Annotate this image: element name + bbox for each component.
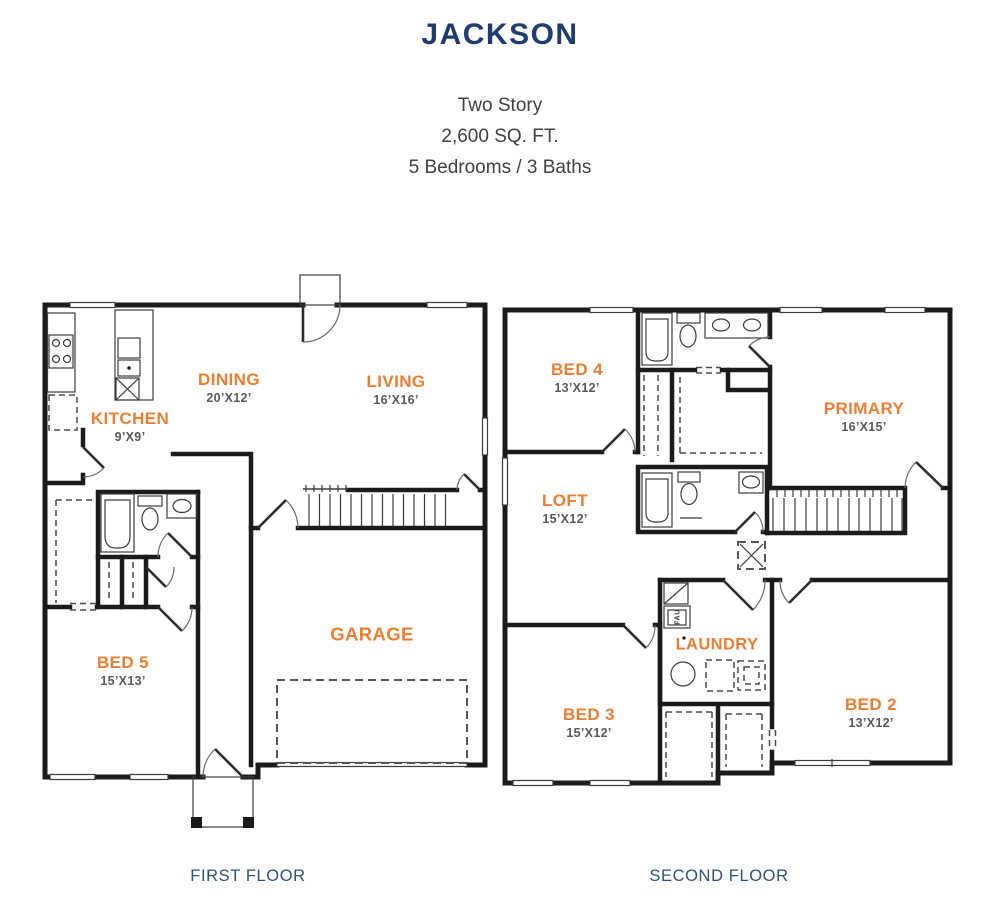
plan-summary: Two Story 2,600 SQ. FT. 5 Bedrooms / 3 B… — [0, 90, 1000, 183]
room-label-bed5: BED 5 15’X13’ — [97, 654, 149, 690]
fau-unit-label: FAU — [674, 609, 681, 625]
summary-sqft: 2,600 SQ. FT. — [0, 121, 1000, 152]
room-label-garage: GARAGE — [330, 626, 414, 643]
room-label-bed3: BED 3 15’X12’ — [563, 706, 615, 742]
first-floor-bath-fixtures — [101, 494, 197, 552]
page-title: JACKSON — [0, 18, 1000, 52]
summary-stories: Two Story — [0, 90, 1000, 121]
room-label-bed4: BED 4 13’X12’ — [551, 361, 603, 397]
room-label-kitchen: KITCHEN 9’X9’ — [91, 410, 169, 446]
rear-porch-stoop — [191, 777, 254, 828]
garage-door-area — [277, 680, 467, 763]
room-label-bed2: BED 2 13’X12’ — [845, 696, 897, 732]
second-floor-plan — [500, 270, 960, 835]
second-floor-closet-shelving — [644, 368, 776, 778]
attic-access-hatch — [738, 542, 765, 569]
room-label-primary: PRIMARY 16’X15’ — [824, 400, 905, 436]
front-porch-stoop — [300, 275, 340, 305]
room-label-loft: LOFT 15’X12’ — [542, 492, 588, 528]
summary-beds-baths: 5 Bedrooms / 3 Baths — [0, 152, 1000, 183]
hall-bath-fixtures — [642, 472, 763, 527]
room-label-living: LIVING 16’X16’ — [366, 373, 425, 409]
second-floor-caption: SECOND FLOOR — [649, 867, 788, 886]
room-label-dining: DINING 20’X12’ — [198, 371, 260, 407]
first-floor-plan — [40, 270, 500, 835]
room-label-laundry: LAUNDRY — [676, 637, 759, 654]
primary-bath-fixtures — [642, 313, 768, 365]
floorplan-page: JACKSON Two Story 2,600 SQ. FT. 5 Bedroo… — [0, 0, 1000, 903]
first-floor-interior-walls — [45, 430, 485, 777]
second-floor-stairs — [773, 490, 902, 531]
first-floor-caption: FIRST FLOOR — [190, 867, 305, 886]
